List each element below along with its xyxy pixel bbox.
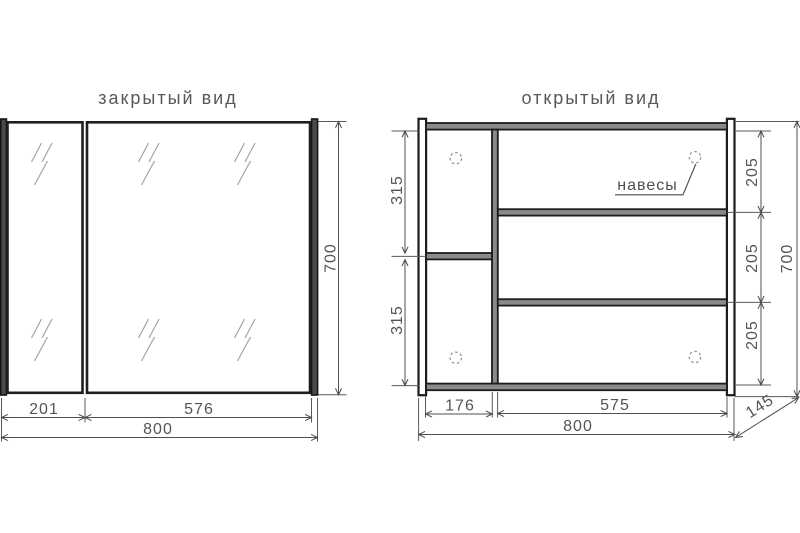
open-left-side-panel bbox=[419, 119, 427, 395]
drawing-canvas: закрытый вид 201 576 800 700 открытый ви… bbox=[0, 0, 800, 533]
closed-narrow-door bbox=[8, 122, 83, 393]
open-dim-col-right: 575 bbox=[600, 397, 630, 414]
closed-cabinet bbox=[1, 119, 318, 395]
open-cabinet bbox=[419, 119, 735, 395]
closed-wide-door bbox=[87, 122, 310, 393]
mount-bottom-right bbox=[689, 351, 700, 362]
open-dim-width: 800 bbox=[563, 418, 593, 435]
open-dim-section-mid: 205 bbox=[744, 243, 761, 273]
open-dim-left-top: 315 bbox=[389, 175, 406, 205]
hangers-label: навесы bbox=[617, 177, 677, 194]
open-right-shelf-upper bbox=[498, 209, 727, 215]
closed-dim-height: 700 bbox=[323, 243, 340, 273]
closed-left-side-panel bbox=[1, 119, 7, 395]
open-dim-col-left: 176 bbox=[445, 398, 475, 415]
closed-view-title: закрытый вид bbox=[98, 88, 237, 108]
open-dim-section-bottom: 205 bbox=[744, 320, 761, 350]
mount-top-right bbox=[689, 152, 700, 163]
open-right-shelf-lower bbox=[498, 299, 727, 305]
open-left-shelf bbox=[426, 253, 492, 259]
open-top-bar bbox=[426, 123, 727, 130]
closed-dim-door-right: 576 bbox=[184, 401, 214, 418]
closed-right-side-panel bbox=[312, 119, 318, 395]
drawing-page: закрытый вид 201 576 800 700 открытый ви… bbox=[0, 0, 800, 533]
mount-top-left bbox=[450, 153, 461, 164]
open-extension-lines bbox=[392, 122, 800, 442]
closed-dim-width: 800 bbox=[143, 421, 173, 438]
open-right-side-panel bbox=[727, 119, 735, 395]
open-view-title: открытый вид bbox=[521, 88, 660, 108]
open-dim-height: 700 bbox=[779, 244, 796, 274]
open-dim-left-bottom: 315 bbox=[389, 305, 406, 335]
closed-dim-door-left: 201 bbox=[29, 401, 59, 418]
open-dim-section-top: 205 bbox=[744, 157, 761, 187]
open-bottom-bar bbox=[426, 384, 727, 391]
mount-bottom-left bbox=[450, 352, 461, 363]
hangers-callout: навесы bbox=[615, 164, 696, 195]
